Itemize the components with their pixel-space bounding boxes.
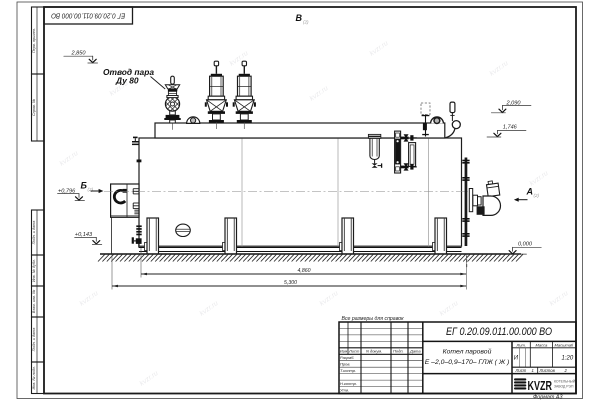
svg-text:Подп. и дата: Подп. и дата (32, 221, 36, 245)
svg-text:1:20: 1:20 (562, 356, 574, 362)
svg-text:Дата: Дата (409, 349, 421, 354)
svg-text:Все размеры для справок: Все размеры для справок (342, 316, 405, 322)
svg-text:1: 1 (532, 368, 534, 373)
svg-text:Пров.: Пров. (340, 362, 351, 367)
svg-text:Утв.: Утв. (340, 388, 349, 393)
svg-text:Взам. инв. №: Взам. инв. № (32, 290, 36, 313)
svg-text:Инв. № подл.: Инв. № подл. (32, 366, 36, 390)
svg-text:Разраб.: Разраб. (340, 355, 354, 360)
svg-text:4,860: 4,860 (298, 268, 311, 274)
svg-text:Лист: Лист (515, 368, 527, 373)
svg-text:Изм: Изм (340, 349, 348, 354)
svg-text:Лист: Лист (348, 349, 360, 354)
svg-text:Перв. примен.: Перв. примен. (32, 28, 36, 53)
svg-text:(2): (2) (534, 193, 540, 198)
svg-text:Н.контр.: Н.контр. (340, 381, 357, 386)
svg-text:Формат А3: Формат А3 (533, 394, 563, 400)
svg-text:Масштаб: Масштаб (555, 342, 574, 347)
svg-text:N докум.: N докум. (366, 349, 382, 354)
svg-text:И: И (514, 356, 519, 362)
svg-text:Листов: Листов (539, 368, 556, 373)
svg-text:1,746: 1,746 (503, 124, 518, 130)
svg-text:ЕГ 0.20.09.011.00.000 ВО: ЕГ 0.20.09.011.00.000 ВО (446, 326, 552, 338)
svg-text:KVZR: KVZR (528, 379, 553, 393)
svg-text:Ду 80: Ду 80 (115, 76, 139, 86)
svg-text:5,300: 5,300 (284, 280, 297, 286)
svg-text:Котел паровой: Котел паровой (443, 348, 492, 356)
svg-text:В: В (296, 13, 303, 23)
svg-text:Лит.: Лит. (516, 342, 526, 347)
svg-text:А: А (526, 187, 534, 197)
svg-text:Подп.: Подп. (393, 349, 404, 354)
svg-text:Инв. № дубл.: Инв. № дубл. (32, 259, 36, 282)
svg-text:Масса: Масса (536, 342, 549, 347)
svg-text:Б: Б (81, 181, 88, 191)
svg-text:Е –2,0–0,9–170– ГЛЖ ( Ж ): Е –2,0–0,9–170– ГЛЖ ( Ж ) (425, 359, 509, 366)
svg-text:КОТЕЛЬНЫЙ: КОТЕЛЬНЫЙ (554, 380, 576, 384)
svg-text:ЗАВОД РЭП: ЗАВОД РЭП (554, 385, 574, 389)
svg-text:(2): (2) (303, 20, 309, 25)
svg-text:Подп. и дата: Подп. и дата (32, 328, 36, 352)
svg-text:2,850: 2,850 (71, 51, 87, 57)
svg-text:0,000: 0,000 (518, 242, 533, 248)
svg-text:ЕГ 0.20.09.011.00.000 ВО: ЕГ 0.20.09.011.00.000 ВО (51, 12, 125, 21)
svg-text:Т.контр.: Т.контр. (340, 368, 356, 373)
svg-text:Справ. №: Справ. № (32, 99, 36, 116)
